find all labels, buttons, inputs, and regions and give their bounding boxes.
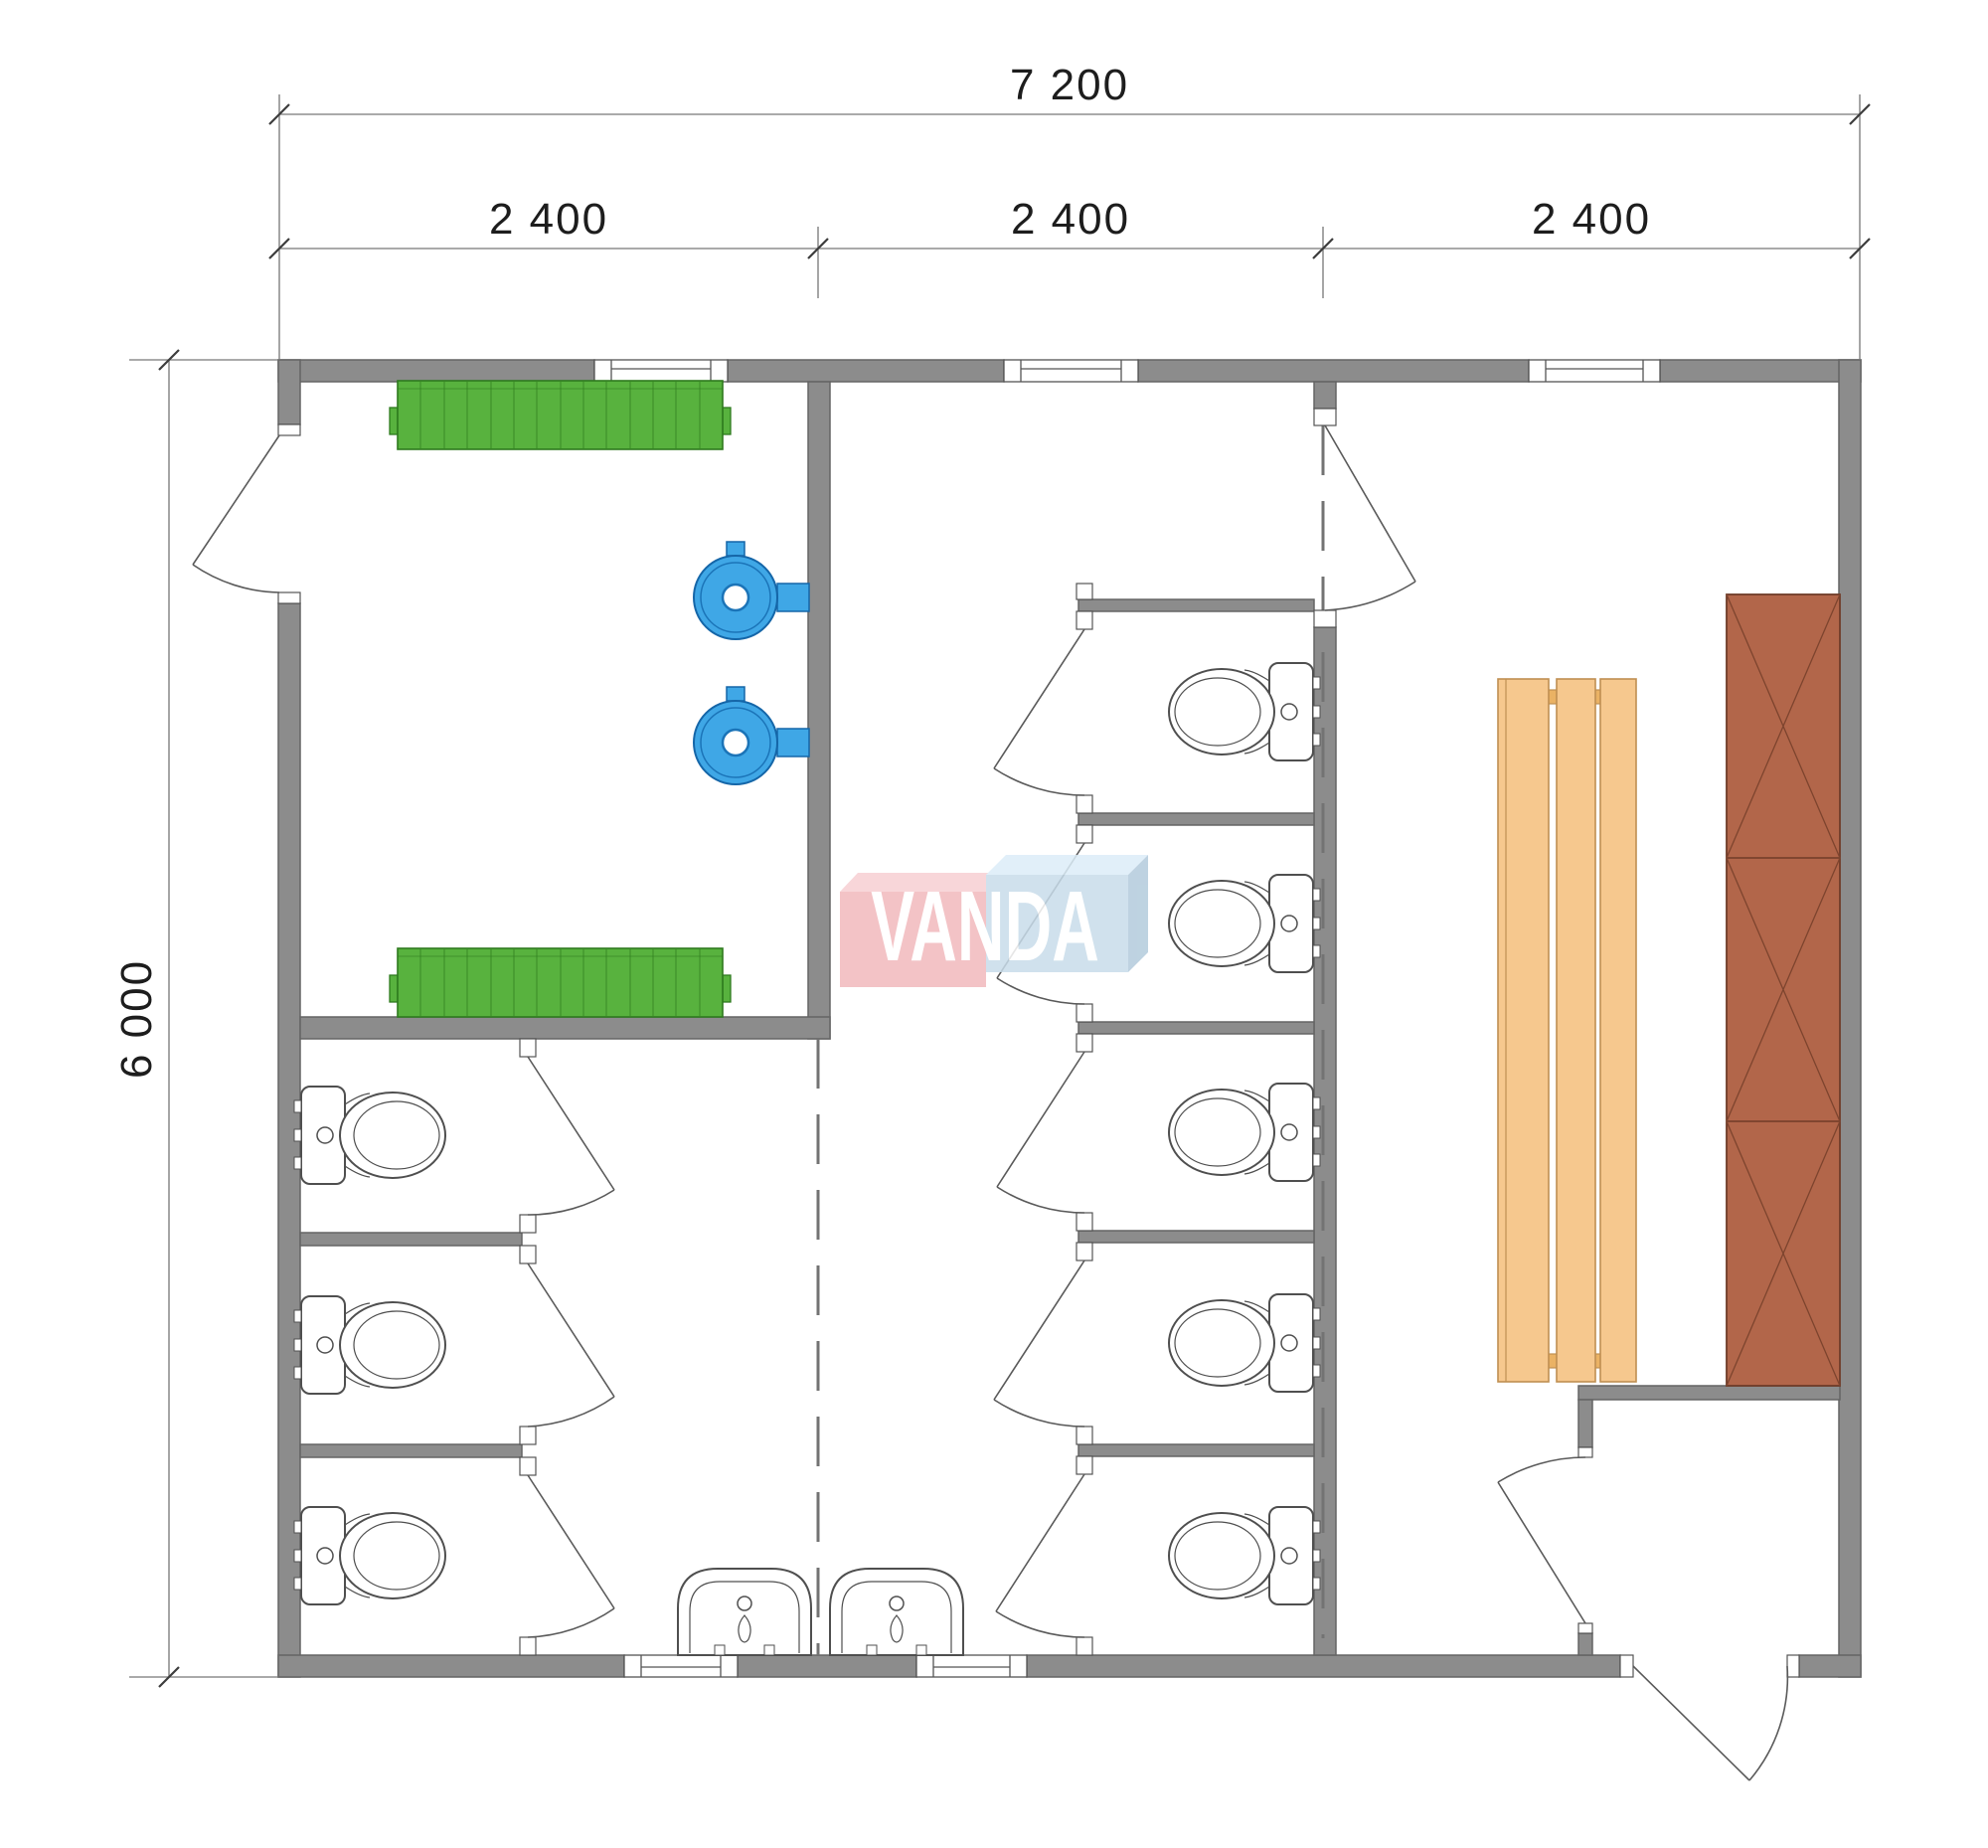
dimension-label: 2 400 — [1532, 195, 1651, 244]
door-swing — [528, 1263, 614, 1427]
floor-plan-drawing: VANDA 7 200 2 400 2 400 2 400 6 000 — [0, 0, 1988, 1848]
sink-icon — [830, 1569, 963, 1655]
door-swing — [994, 629, 1084, 795]
bench-slat — [1600, 679, 1636, 1382]
toilet-icon — [1169, 1084, 1320, 1181]
water-heater-icon — [694, 542, 809, 639]
logo-text: VANDA — [871, 870, 1099, 981]
window — [624, 1655, 738, 1677]
door-swing — [1325, 425, 1415, 610]
locker-cabinet — [1727, 594, 1840, 1386]
floor-plan-canvas: VANDA 7 200 2 400 2 400 2 400 6 000 — [0, 0, 1988, 1848]
window — [594, 360, 728, 382]
door-swing — [994, 1260, 1084, 1427]
toilet-icon — [294, 1296, 445, 1394]
door-swing — [193, 435, 279, 592]
radiators — [390, 381, 731, 1017]
water-heater-icon — [694, 687, 809, 784]
door-swing — [996, 1474, 1084, 1637]
toilet-icon — [294, 1507, 445, 1604]
door-swing — [997, 1052, 1084, 1213]
door-swing — [528, 1057, 614, 1215]
vanda-logo: VANDA — [840, 855, 1148, 987]
dimension-label: 6 000 — [112, 959, 161, 1079]
toilets — [294, 663, 1320, 1604]
radiator-icon — [390, 948, 731, 1017]
toilet-icon — [1169, 875, 1320, 972]
benches — [1498, 679, 1636, 1382]
door-swing — [1633, 1666, 1787, 1780]
dimension-label: 2 400 — [1011, 195, 1130, 244]
sinks — [678, 1569, 963, 1655]
door-swing — [528, 1475, 614, 1637]
bench-slat — [1557, 679, 1595, 1382]
toilet-icon — [1169, 1507, 1320, 1604]
logo-box-side-blue — [1128, 855, 1148, 972]
toilet-icon — [1169, 663, 1320, 760]
radiator-icon — [390, 381, 731, 449]
window — [916, 1655, 1027, 1677]
dimension-label: 7 200 — [1010, 61, 1129, 109]
dimension-label: 2 400 — [489, 195, 608, 244]
window — [1529, 360, 1660, 382]
window — [1004, 360, 1138, 382]
door-swing — [1498, 1457, 1585, 1623]
sink-icon — [678, 1569, 811, 1655]
toilet-icon — [294, 1087, 445, 1184]
water-heaters — [694, 542, 809, 784]
toilet-icon — [1169, 1294, 1320, 1392]
